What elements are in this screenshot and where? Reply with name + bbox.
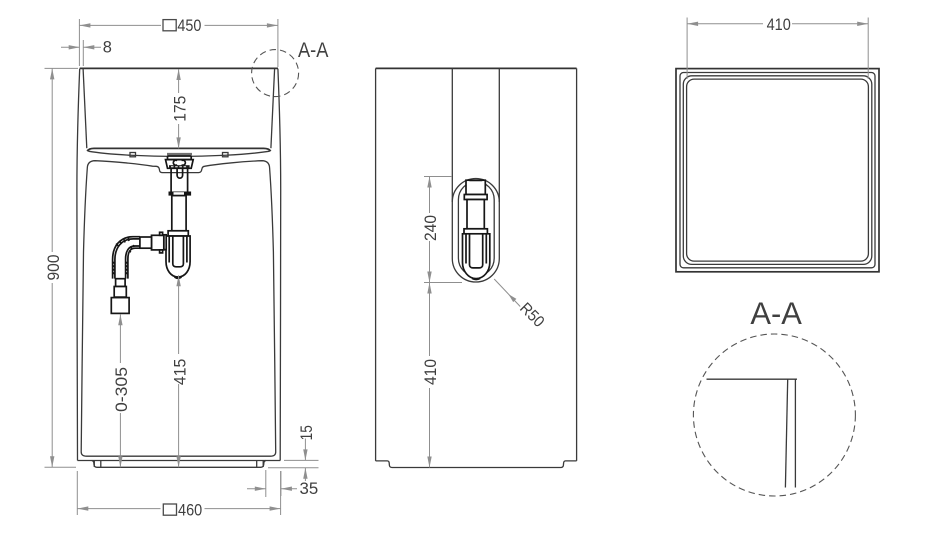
svg-text:15: 15 <box>297 425 316 440</box>
svg-text:35: 35 <box>300 480 319 498</box>
svg-text:8: 8 <box>103 38 112 56</box>
svg-text:410: 410 <box>767 16 791 34</box>
svg-text:460: 460 <box>178 502 202 520</box>
svg-text:A-A: A-A <box>298 39 328 62</box>
svg-text:A-A: A-A <box>750 295 802 331</box>
svg-text:410: 410 <box>421 359 440 385</box>
svg-text:415: 415 <box>170 359 189 385</box>
svg-text:900: 900 <box>44 255 63 281</box>
svg-text:175: 175 <box>170 96 189 122</box>
svg-text:450: 450 <box>177 17 201 35</box>
svg-text:240: 240 <box>421 215 440 241</box>
svg-text:0-305: 0-305 <box>112 367 131 412</box>
